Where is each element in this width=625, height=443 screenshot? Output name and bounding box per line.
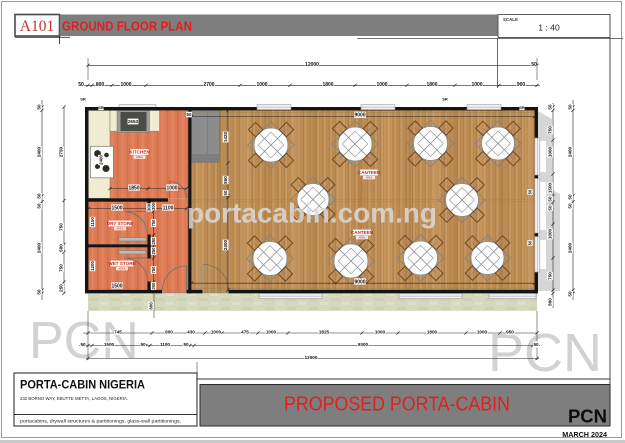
svg-text:50: 50 bbox=[548, 104, 553, 110]
svg-text:2400: 2400 bbox=[99, 155, 104, 165]
svg-text:50: 50 bbox=[568, 291, 573, 297]
svg-text:50: 50 bbox=[140, 342, 146, 347]
svg-text:PORTA-CABIN NIGERIA: PORTA-CABIN NIGERIA bbox=[20, 379, 146, 392]
svg-text:AREA: AREA bbox=[358, 236, 365, 240]
svg-text:1100: 1100 bbox=[160, 342, 170, 347]
svg-text:GROUND FLOOR PLAN: GROUND FLOOR PLAN bbox=[62, 18, 192, 33]
svg-text:1000: 1000 bbox=[548, 228, 553, 239]
svg-text:1500: 1500 bbox=[548, 182, 553, 193]
svg-text:50: 50 bbox=[37, 203, 42, 209]
svg-text:1200: 1200 bbox=[90, 261, 95, 271]
svg-text:2400: 2400 bbox=[223, 239, 228, 250]
svg-text:250: 250 bbox=[59, 284, 64, 292]
svg-text:750: 750 bbox=[59, 264, 64, 272]
svg-text:50: 50 bbox=[223, 190, 228, 196]
svg-text:50: 50 bbox=[37, 193, 42, 199]
svg-text:750: 750 bbox=[548, 272, 553, 280]
svg-text:50: 50 bbox=[568, 104, 573, 110]
svg-text:2750: 2750 bbox=[59, 146, 64, 157]
svg-text:1800: 1800 bbox=[426, 82, 437, 88]
svg-text:50: 50 bbox=[37, 104, 42, 110]
svg-text:50: 50 bbox=[183, 342, 189, 347]
svg-text:9000: 9000 bbox=[354, 113, 365, 119]
svg-text:50: 50 bbox=[568, 194, 573, 200]
svg-text:250: 250 bbox=[151, 247, 156, 255]
svg-text:800: 800 bbox=[548, 298, 553, 306]
svg-text:500: 500 bbox=[59, 244, 64, 252]
svg-text:50: 50 bbox=[531, 62, 537, 68]
svg-text:750: 750 bbox=[548, 126, 553, 134]
svg-text:1000: 1000 bbox=[211, 330, 222, 335]
svg-text:750: 750 bbox=[151, 266, 156, 274]
svg-text:portacabin.com.ng: portacabin.com.ng bbox=[187, 198, 437, 229]
svg-text:300: 300 bbox=[151, 202, 156, 210]
svg-text:AREA: AREA bbox=[116, 227, 123, 231]
svg-text:1000: 1000 bbox=[477, 330, 488, 335]
svg-text:PCN: PCN bbox=[488, 323, 602, 383]
svg-text:SR: SR bbox=[80, 96, 86, 101]
svg-text:50: 50 bbox=[37, 289, 42, 295]
svg-text:50: 50 bbox=[533, 342, 539, 347]
svg-text:2400: 2400 bbox=[568, 242, 573, 253]
svg-text:50: 50 bbox=[187, 112, 192, 117]
svg-text:9000: 9000 bbox=[354, 279, 365, 285]
svg-text:1000: 1000 bbox=[120, 82, 131, 88]
svg-text:12000: 12000 bbox=[305, 355, 318, 360]
svg-text:745: 745 bbox=[114, 330, 122, 335]
svg-text:PCN: PCN bbox=[29, 312, 139, 370]
svg-text:MARCH 2024: MARCH 2024 bbox=[562, 430, 607, 439]
svg-text:1000: 1000 bbox=[166, 185, 177, 191]
svg-text:750: 750 bbox=[59, 223, 64, 231]
svg-text:1000: 1000 bbox=[256, 82, 267, 88]
svg-text:A101: A101 bbox=[20, 18, 54, 35]
svg-text:2653: 2653 bbox=[128, 119, 139, 124]
svg-text:2400: 2400 bbox=[37, 146, 42, 157]
svg-text:1150: 1150 bbox=[90, 217, 95, 227]
svg-text:1500: 1500 bbox=[104, 342, 115, 347]
svg-text:50: 50 bbox=[528, 240, 533, 245]
svg-text:1100: 1100 bbox=[163, 205, 174, 211]
svg-text:1500: 1500 bbox=[111, 205, 122, 211]
svg-text:1000: 1000 bbox=[266, 330, 277, 335]
svg-text:900: 900 bbox=[517, 82, 526, 88]
svg-text:250: 250 bbox=[151, 237, 156, 245]
svg-text:600: 600 bbox=[149, 302, 154, 310]
svg-text:KITCHEN: KITCHEN bbox=[129, 150, 150, 155]
svg-text:AREA: AREA bbox=[136, 155, 143, 159]
svg-text:50: 50 bbox=[568, 203, 573, 209]
svg-text:SCALE: SCALE bbox=[503, 17, 518, 22]
svg-text:50: 50 bbox=[528, 189, 533, 194]
svg-text:1420: 1420 bbox=[223, 131, 228, 142]
svg-text:950: 950 bbox=[506, 330, 514, 335]
svg-text:PROPOSED PORTA-CABIN: PROPOSED PORTA-CABIN bbox=[284, 394, 510, 416]
svg-text:50: 50 bbox=[80, 342, 86, 347]
svg-text:232 BORNO WAY, EBUTTE METTA, L: 232 BORNO WAY, EBUTTE METTA, LAGOS, NIGE… bbox=[20, 396, 128, 402]
svg-text:475: 475 bbox=[241, 330, 249, 335]
svg-text:1800: 1800 bbox=[322, 82, 333, 88]
svg-text:860: 860 bbox=[223, 176, 228, 184]
svg-text:1825: 1825 bbox=[319, 330, 330, 335]
svg-text:1500: 1500 bbox=[111, 283, 122, 289]
svg-text:SR: SR bbox=[442, 96, 448, 101]
svg-text:2700: 2700 bbox=[203, 82, 214, 88]
svg-text:CANTEEN: CANTEEN bbox=[351, 230, 374, 235]
svg-text:750: 750 bbox=[151, 219, 156, 227]
svg-text:AREA: AREA bbox=[365, 176, 372, 180]
svg-text:1800: 1800 bbox=[427, 330, 438, 335]
svg-text:430: 430 bbox=[187, 330, 195, 335]
svg-text:SR: SR bbox=[519, 105, 525, 110]
svg-text:DRY STORE: DRY STORE bbox=[107, 221, 133, 226]
svg-text:CANTEEN: CANTEEN bbox=[358, 170, 381, 175]
svg-text:1000: 1000 bbox=[471, 82, 482, 88]
svg-text:WET STORE: WET STORE bbox=[108, 261, 135, 266]
svg-text:50: 50 bbox=[548, 205, 553, 211]
svg-text:300: 300 bbox=[151, 282, 156, 290]
svg-text:AREA: AREA bbox=[118, 267, 125, 271]
svg-text:1000: 1000 bbox=[548, 146, 553, 157]
svg-text:SR: SR bbox=[98, 105, 104, 110]
svg-text:2400: 2400 bbox=[568, 146, 573, 157]
svg-text:2400: 2400 bbox=[37, 242, 42, 253]
svg-text:800: 800 bbox=[96, 82, 105, 88]
svg-text:900: 900 bbox=[165, 330, 173, 335]
svg-text:portacabins, drywall structure: portacabins, drywall structures & partit… bbox=[20, 419, 181, 425]
svg-text:1000: 1000 bbox=[376, 82, 387, 88]
svg-text:12000: 12000 bbox=[305, 62, 319, 68]
svg-text:PCN: PCN bbox=[568, 406, 607, 427]
svg-text:9300: 9300 bbox=[358, 342, 369, 347]
svg-text:1850: 1850 bbox=[128, 185, 139, 191]
svg-text:50: 50 bbox=[78, 82, 84, 88]
svg-text:1 : 40: 1 : 40 bbox=[538, 23, 560, 33]
svg-text:1000: 1000 bbox=[375, 330, 386, 335]
svg-text:50: 50 bbox=[548, 196, 553, 202]
